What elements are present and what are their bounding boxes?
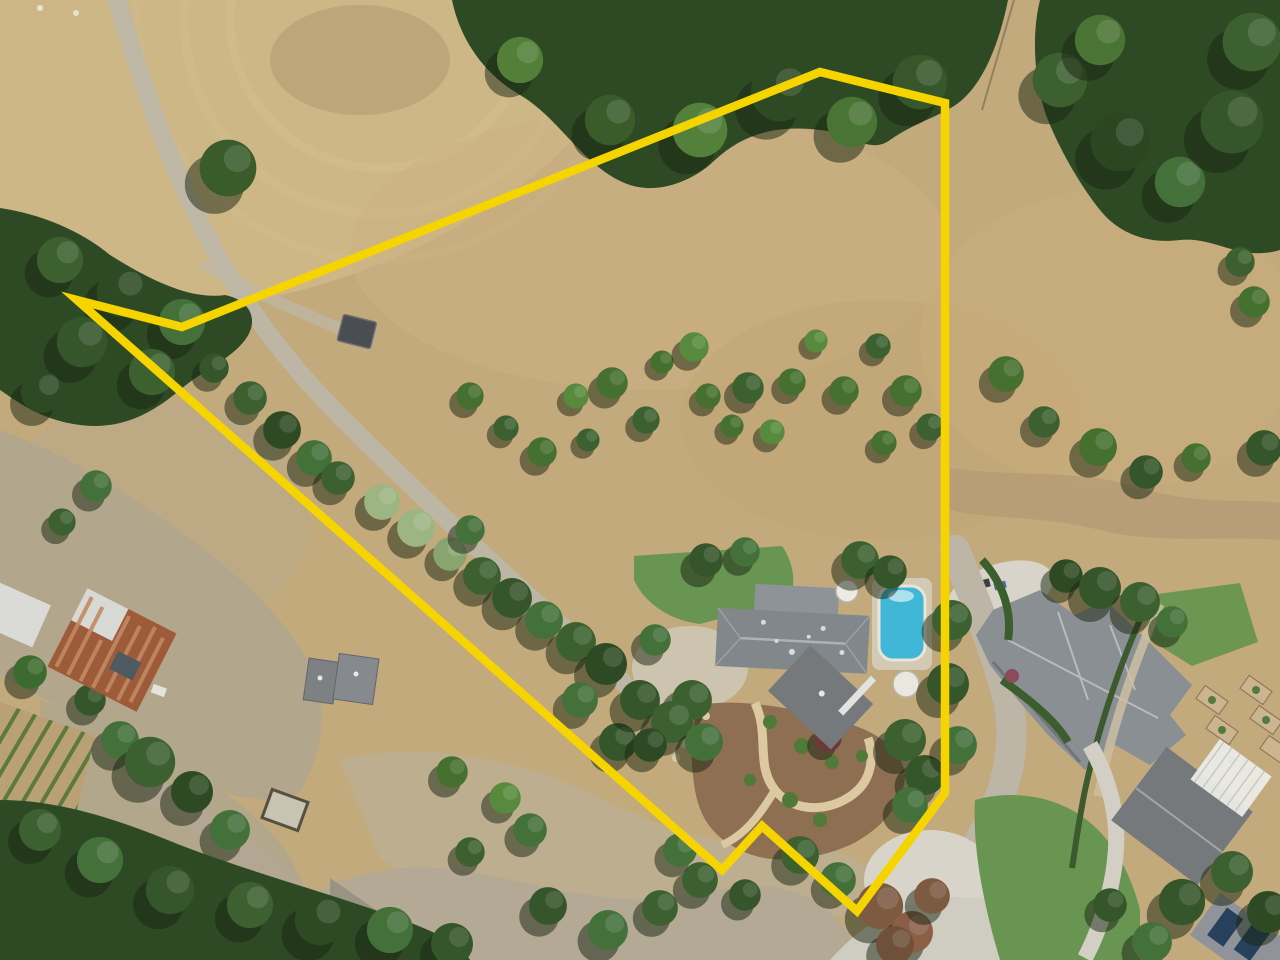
- property-aerial-photo: [0, 0, 1280, 960]
- patio-umbrella: [893, 671, 919, 697]
- flower-bush: [1005, 669, 1019, 683]
- scrub-patch: [270, 5, 450, 115]
- screenshot-root: [0, 0, 1280, 960]
- gray-barns: [303, 653, 379, 704]
